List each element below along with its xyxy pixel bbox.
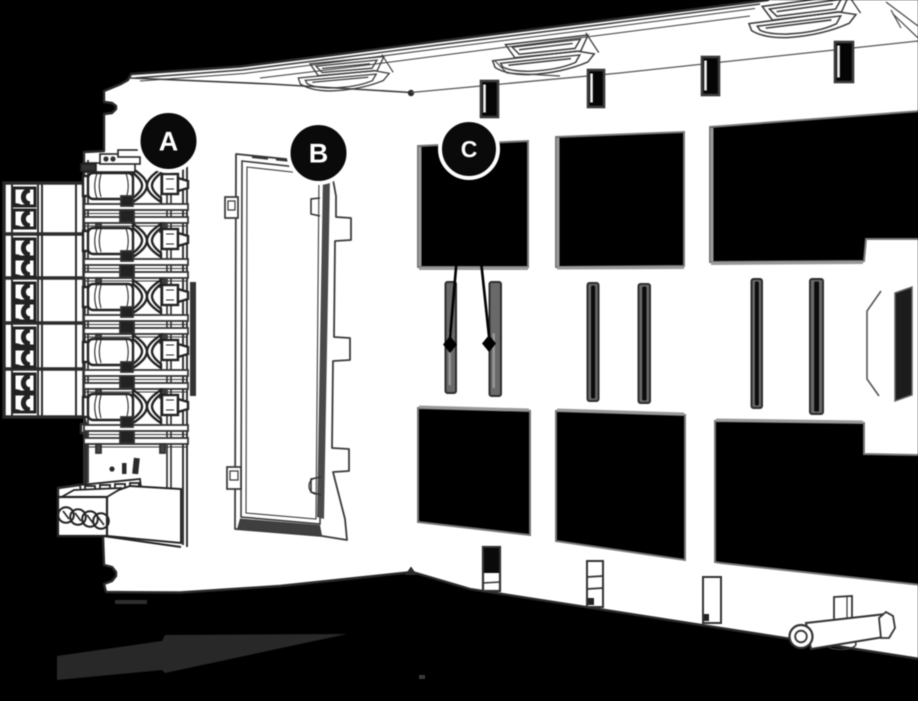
svg-text:C: C <box>461 136 478 162</box>
svg-text:A: A <box>159 126 179 156</box>
svg-text:B: B <box>309 138 329 168</box>
